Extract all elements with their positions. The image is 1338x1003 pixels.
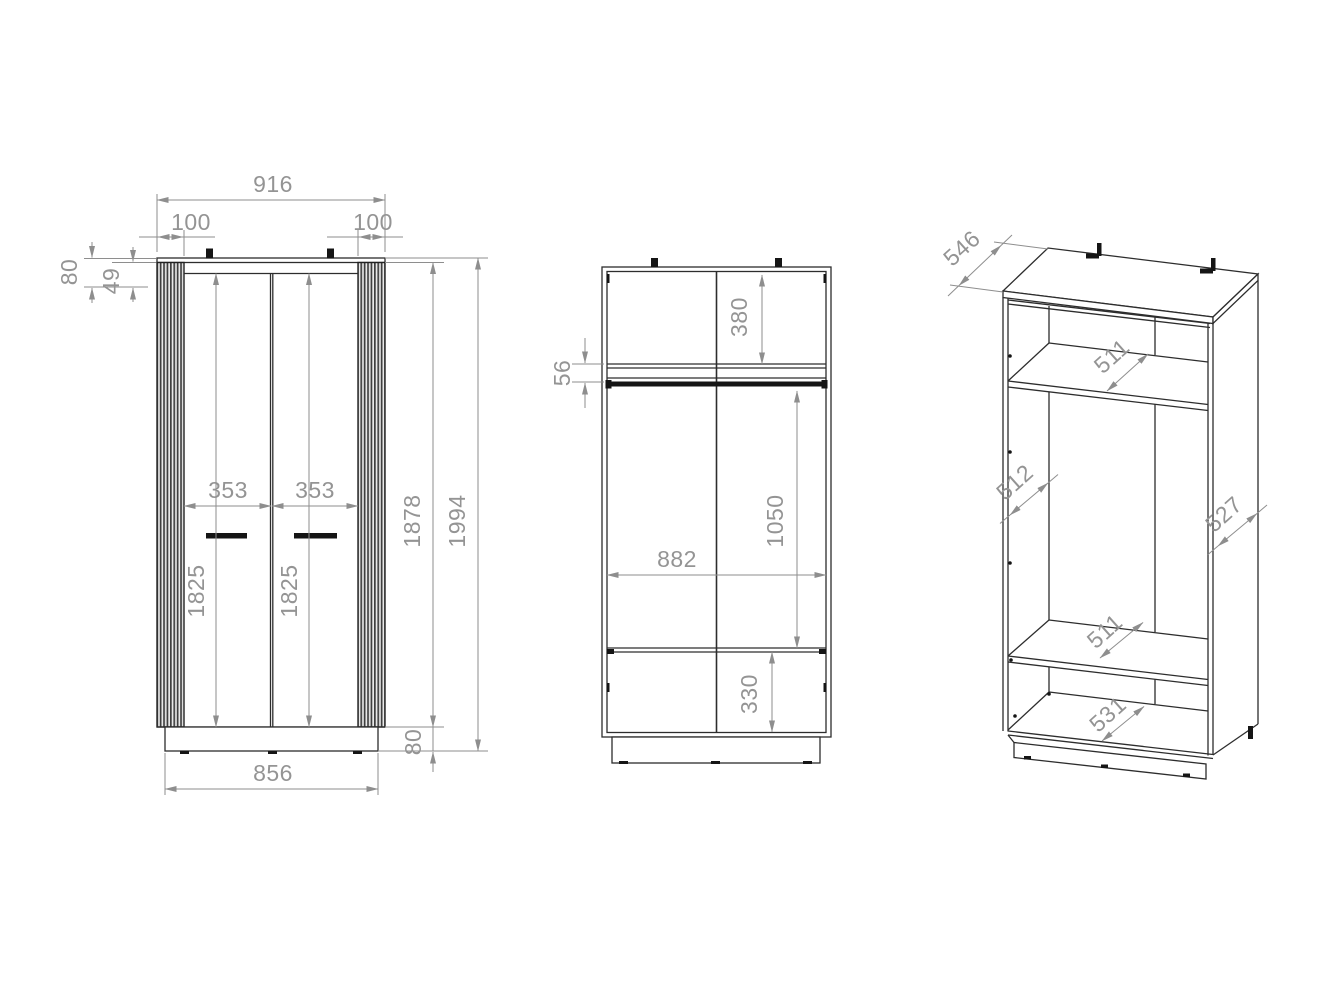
left-slat-panel (157, 263, 184, 728)
dim-right-door-height: 1825 (276, 564, 302, 617)
dim-overall-width: 916 (253, 171, 293, 197)
dim-rail-gap: 56 (549, 360, 575, 387)
front-view: 916 100 100 80 49 353 353 1825 1825 (56, 171, 488, 795)
foot (1101, 765, 1108, 769)
hinge-mark (607, 274, 610, 283)
foot (619, 761, 628, 764)
plinth (612, 737, 820, 763)
dim-right-side-depth: 527 (1200, 491, 1247, 537)
hanging-rail (607, 382, 826, 387)
left-door-handle (206, 533, 247, 539)
pin-hole (1008, 561, 1012, 565)
foot (353, 751, 362, 754)
shelf-support (607, 649, 614, 654)
dim-overall-height: 1994 (444, 494, 470, 547)
dim-middle-section: 1050 (762, 494, 788, 547)
pin-hole (1008, 450, 1012, 454)
dim-left-offset: 100 (171, 209, 211, 235)
dim-top-section: 380 (726, 297, 752, 337)
dim-base-width: 856 (253, 760, 293, 786)
dim-bottom-depth: 531 (1084, 691, 1131, 737)
dim-interior-width: 882 (657, 546, 697, 572)
dim-depth: 546 (938, 225, 985, 271)
foot (1248, 726, 1253, 739)
hinge-mark (607, 683, 610, 692)
technical-drawing-canvas: 916 100 100 80 49 353 353 1825 1825 (0, 0, 1338, 1003)
dim-left-door-width: 353 (208, 477, 248, 503)
dim-carcass-height: 1878 (399, 494, 425, 547)
dim-right-offset: 100 (353, 209, 393, 235)
dim-left-door-height: 1825 (183, 564, 209, 617)
foot (803, 761, 812, 764)
dim-bottom-section: 330 (736, 674, 762, 714)
dim-right-door-width: 353 (295, 477, 335, 503)
dim-plinth-height: 80 (400, 729, 426, 756)
foot (180, 751, 189, 754)
rail-end-cap (822, 380, 828, 389)
wall-bracket (327, 249, 334, 259)
right-door-handle (294, 533, 337, 539)
wall-bracket (1086, 254, 1099, 259)
wall-bracket (1200, 269, 1213, 274)
internal-view: 56 380 1050 882 330 (549, 258, 831, 764)
hinge-mark (824, 683, 827, 692)
top-panel (157, 258, 385, 263)
foot (1183, 774, 1190, 778)
foot (1024, 756, 1031, 760)
wall-bracket (651, 258, 658, 267)
right-slat-panel (358, 263, 385, 728)
hinge-mark (824, 274, 827, 283)
foot (268, 751, 277, 754)
shelf-support (819, 649, 826, 654)
plinth (165, 727, 378, 751)
dim-top-rail: 49 (98, 268, 124, 295)
lower-shelf (1049, 620, 1208, 639)
pin-hole (1047, 692, 1051, 696)
dim-lower-shelf-depth: 511 (1082, 609, 1128, 654)
pin-hole (1008, 354, 1012, 358)
foot (711, 761, 720, 764)
wardrobe-dimension-drawing: 916 100 100 80 49 353 353 1825 1825 (0, 0, 1338, 1003)
wall-bracket (206, 249, 213, 259)
plinth (1014, 743, 1206, 780)
rail-end-cap (606, 380, 612, 389)
wall-bracket (775, 258, 782, 267)
dim-left-interior-depth: 512 (991, 459, 1038, 505)
dim-top-height: 80 (56, 259, 82, 286)
perspective-view: 546 511 512 527 511 531 (938, 225, 1267, 779)
pin-hole (1013, 714, 1017, 718)
pin-hole (1009, 658, 1013, 662)
